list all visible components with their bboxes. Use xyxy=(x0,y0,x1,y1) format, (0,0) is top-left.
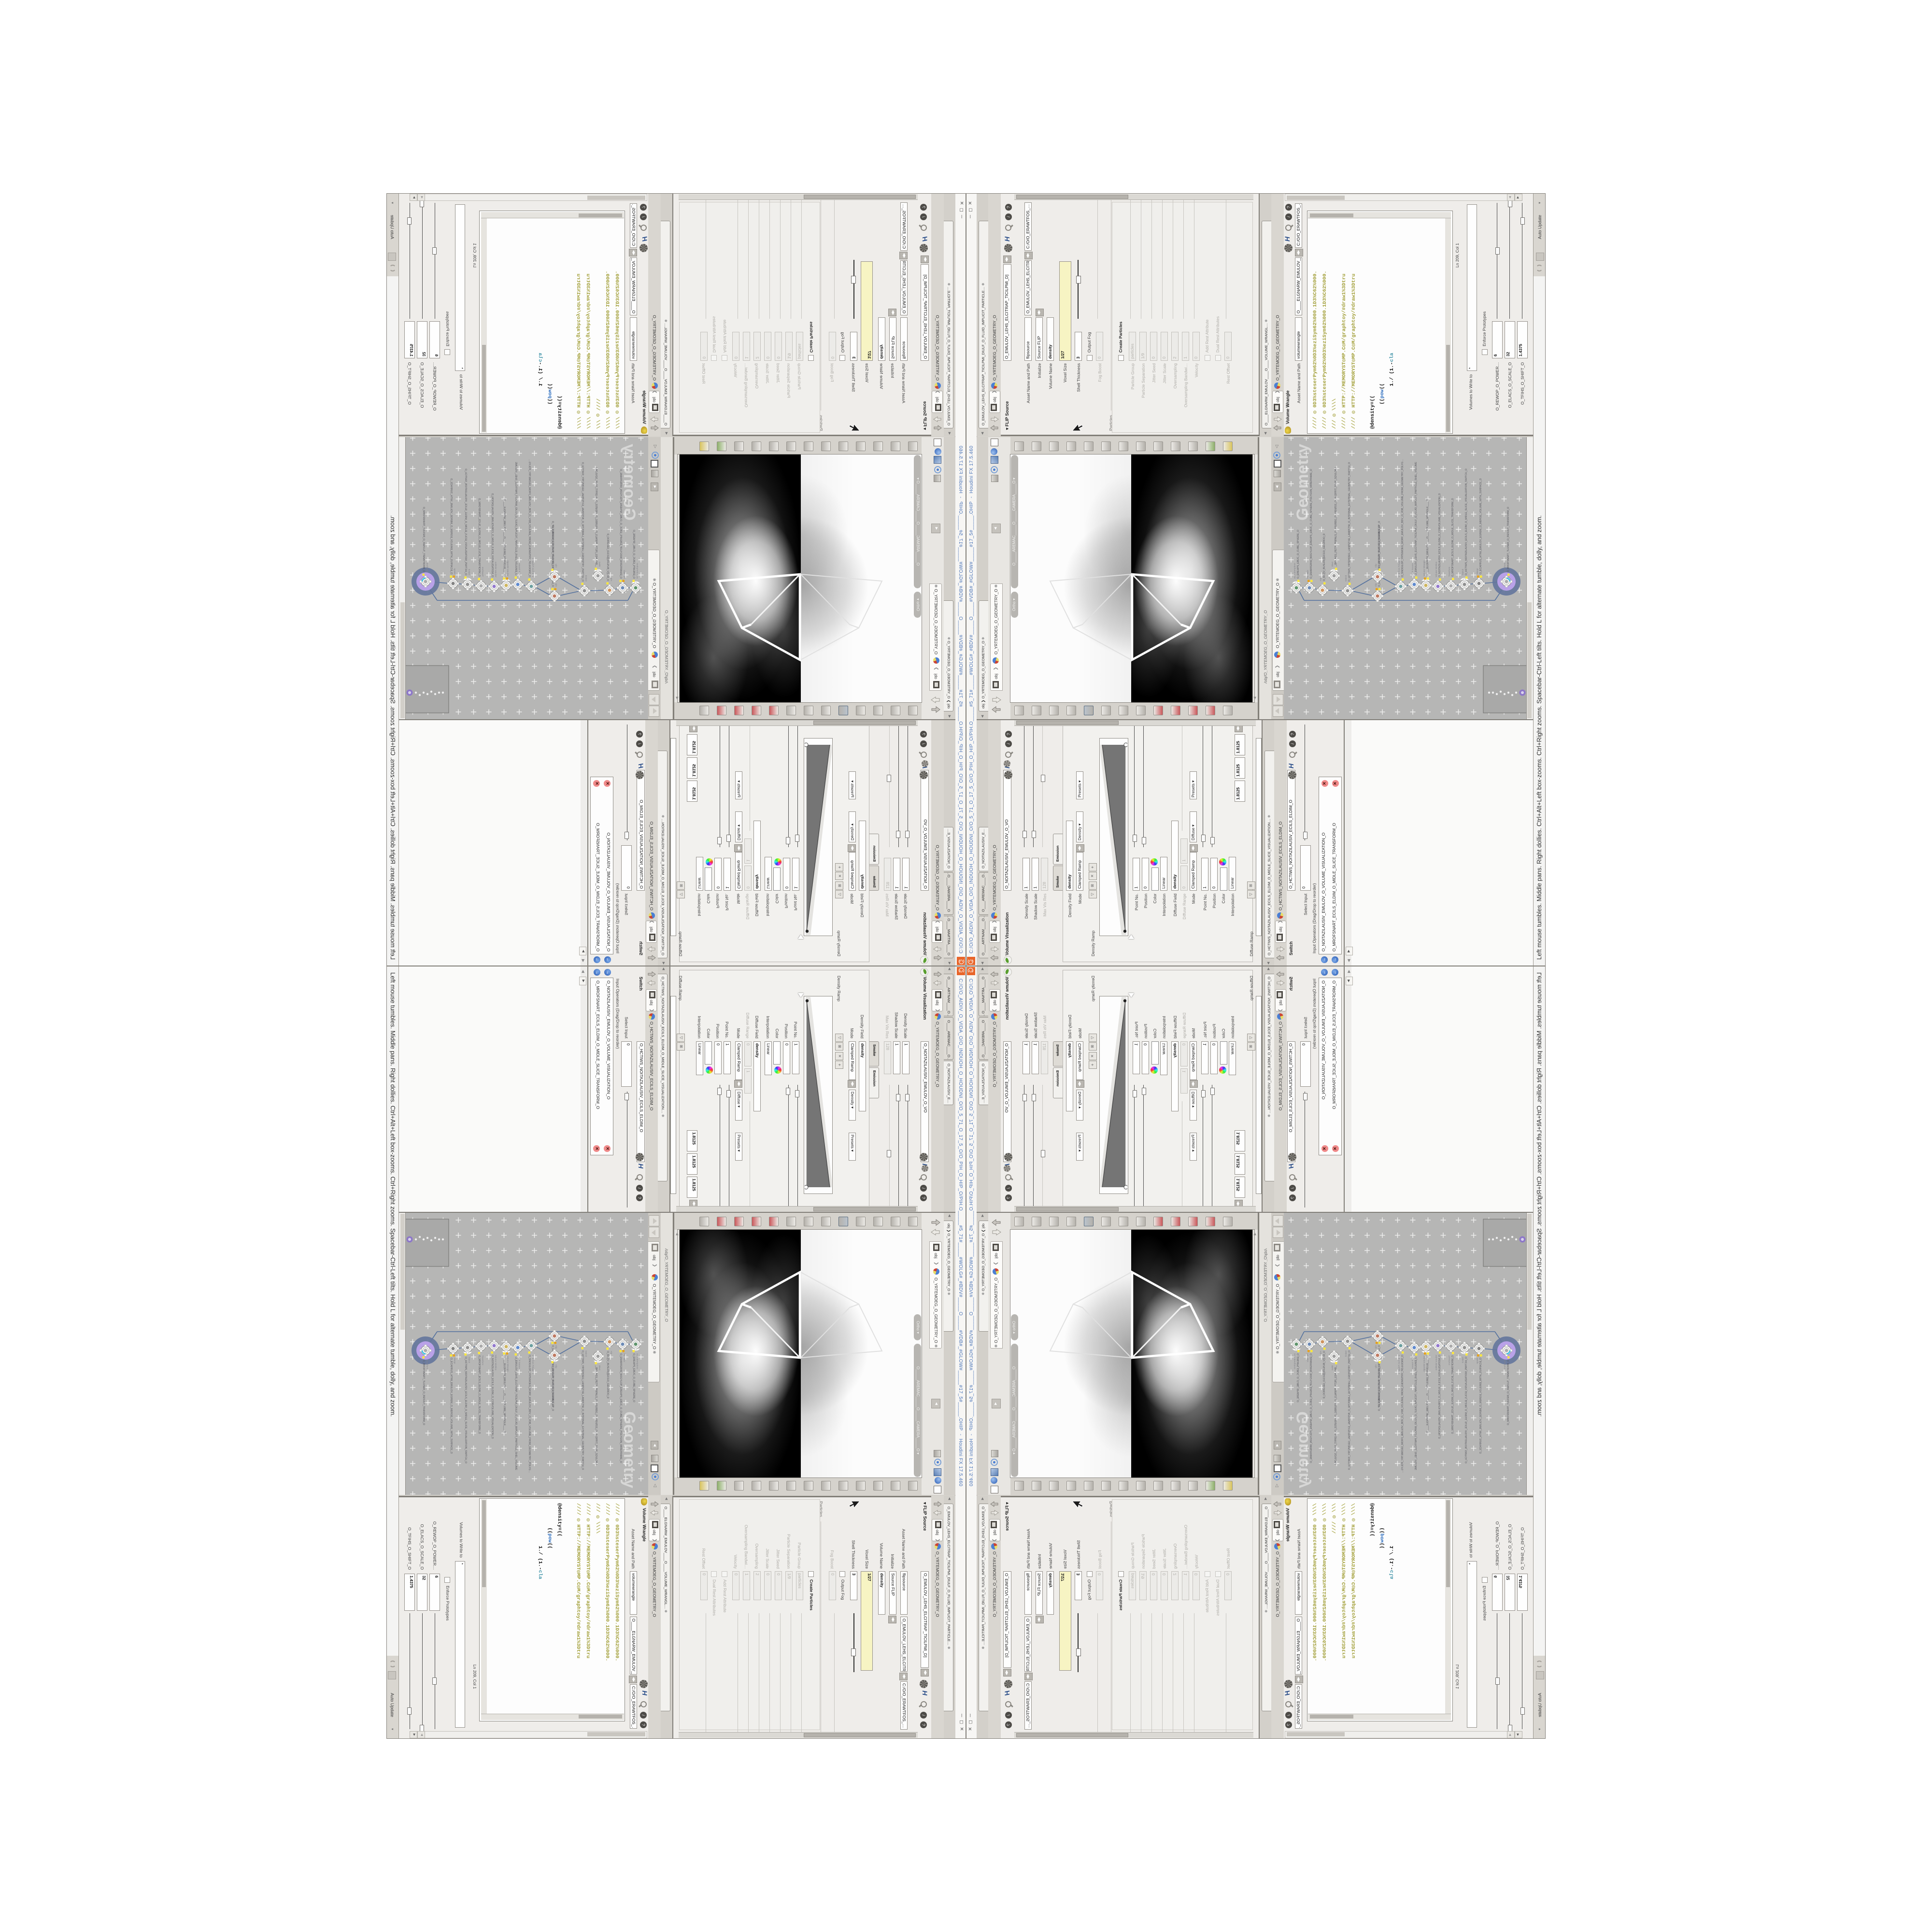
svg-text:VDB from Polygons: VDB from Polygons xyxy=(532,558,534,577)
svg-text:O_ECAFRUS_HTIW_EMULOV_EGREM_O_: O_ECAFRUS_HTIW_EMULOV_EGREM_O_MERGE_VOLU… xyxy=(1479,478,1482,574)
svg-text:Volume Wrangle: Volume Wrangle xyxy=(1423,1356,1425,1372)
svg-text:Blast: Blast xyxy=(598,1365,601,1371)
svg-text:Blast: Blast xyxy=(598,561,601,567)
svg-text:Switch: Switch xyxy=(1462,568,1464,575)
svg-text:O_MC╳V_BUSLRB╳ECGO_GENJRDO_D: O_MC╳V_BUSLRB╳ECGO_GENJRDO_D xyxy=(1322,533,1326,581)
svg-text:O_MROFSNART_TLUSER_O_RESULT_TR: O_MROFSNART_TLUSER_O_RESULT_TRANSFORM_O xyxy=(422,1360,425,1425)
svg-text:Volume Wrangle: Volume Wrangle xyxy=(507,1356,509,1372)
svg-text:O_EMARFERIW_NOGYLOP_EREHPS_EBU: O_EMARFERIW_NOGYLOP_EREHPS_EBUC_O_CUBE_S… xyxy=(1310,1353,1313,1463)
svg-text:Switch: Switch xyxy=(1345,1350,1347,1357)
svg-text:Blast: Blast xyxy=(1331,561,1334,567)
svg-text:Blast: Blast xyxy=(1331,1365,1334,1371)
svg-text:Transform: Transform xyxy=(482,1355,484,1365)
svg-text:File: File xyxy=(1320,1351,1322,1355)
svg-text:Transform: Transform xyxy=(426,562,428,572)
svg-text:Clip: Clip xyxy=(555,1345,557,1349)
svg-text:Geometry: Geometry xyxy=(620,444,639,521)
svg-text:O_EREHPS_EBUC_O_CUBE_SPHERE_O: O_EREHPS_EBUC_O_CUBE_SPHERE_O xyxy=(632,530,635,579)
svg-text:O_MROFSNART_ECILS_ELDIM_O_MIDL: O_MROFSNART_ECILS_ELDIM_O_MIDLE_SLICE_TR… xyxy=(1451,1355,1454,1434)
svg-text:PolyWire: PolyWire xyxy=(623,1353,625,1362)
svg-text:O_MROFSNART_ECILS_ELDIM_O_MIDL: O_MROFSNART_ECILS_ELDIM_O_MIDLE_SLICE_TR… xyxy=(478,498,481,577)
svg-text:an_CubeSphere: an_CubeSphere xyxy=(636,563,639,579)
svg-text:O____ELGNARW_EMULOV____O____VO: O____ELGNARW_EMULOV____O____VOLUME_WRANG… xyxy=(1426,499,1429,576)
svg-text:O____ELGNARW_EMULOV____O____VO: O____ELGNARW_EMULOV____O____VOLUME_WRANG… xyxy=(503,1356,506,1433)
svg-text:Geometry: Geometry xyxy=(620,1411,639,1488)
svg-text:VDB from Polygons: VDB from Polygons xyxy=(532,1355,534,1374)
svg-text:O____ELGNARW_EMULOV____O____VO: O____ELGNARW_EMULOV____O____VOLUME_WRANG… xyxy=(1426,1356,1429,1433)
svg-text:Transform: Transform xyxy=(426,1360,428,1370)
svg-text:O_MROFSNART_ECILS_ELDIM_O_MIDL: O_MROFSNART_ECILS_ELDIM_O_MIDLE_SLICE_TR… xyxy=(478,1355,481,1434)
svg-text:O_EMULOV_PILC_O_VOLUME_CLIP_O: O_EMULOV_PILC_O_VOLUME_CLIP_O xyxy=(1378,521,1381,568)
svg-text:VDB from Polygons: VDB from Polygons xyxy=(1398,558,1400,577)
svg-text:File: File xyxy=(610,1351,612,1355)
svg-text:O_EMULOV_PILC_O_VOLUME_CLIP_O: O_EMULOV_PILC_O_VOLUME_CLIP_O xyxy=(551,1364,554,1411)
svg-text:O_MC╳V_BUSLRB╳ECGO_GENJRDO_D: O_MC╳V_BUSLRB╳ECGO_GENJRDO_D xyxy=(1322,1351,1326,1399)
svg-text:an_CubeSphere: an_CubeSphere xyxy=(636,1353,639,1369)
svg-text:O_EMARFERIW_NOGYLOP_EREHPS_EBU: O_EMARFERIW_NOGYLOP_EREHPS_EBUC_O_CUBE_S… xyxy=(619,1353,622,1463)
svg-text:O_EMULOV_LEHS_ELCITRAP_TICILPM: O_EMULOV_LEHS_ELCITRAP_TICILPMI_DIULF_O_… xyxy=(1415,462,1418,575)
svg-text:Merge: Merge xyxy=(454,1358,456,1364)
svg-text:Transform: Transform xyxy=(482,567,484,577)
svg-text:Volume VisSlice: Volume VisSlice xyxy=(1435,561,1437,577)
svg-text:Clip: Clip xyxy=(1375,1364,1377,1368)
svg-text:O_EREHPS_EBUC_O_CUBE_SPHERE_O: O_EREHPS_EBUC_O_CUBE_SPHERE_O xyxy=(1297,530,1300,579)
svg-text:O_EMULOV_PILC_O_VOLUME_CLIP_O: O_EMULOV_PILC_O_VOLUME_CLIP_O xyxy=(1378,1364,1381,1411)
svg-text:O_HCTIWS_NOITAZILAUSIV_ECILS_E: O_HCTIWS_NOITAZILAUSIV_ECILS_ELDIM_O_MID… xyxy=(1465,1357,1468,1463)
svg-text:PolyWire: PolyWire xyxy=(1307,570,1309,579)
svg-text:_JBO_NO1_PETS_TRIPALS_O_SSURBG: _JBO_NO1_PETS_TRIPALS_O_SSURBG_O_GENЛSS_… xyxy=(595,467,597,567)
svg-text:Geometry: Geometry xyxy=(1293,1411,1312,1488)
svg-text:File: File xyxy=(610,577,612,581)
svg-text:O_NOITAZILAUSIV_ECILS_ELDIM_O_: O_NOITAZILAUSIV_ECILS_ELDIM_O_CONVOLUME_… xyxy=(1438,493,1441,577)
svg-text:Volume Wrangle: Volume Wrangle xyxy=(507,560,509,576)
svg-text:O_NOITAZILAUSIV_ECILS_ELDIM_O_: O_NOITAZILAUSIV_ECILS_ELDIM_O_CONVOLUME_… xyxy=(1438,1355,1441,1439)
svg-text:PolyWire: PolyWire xyxy=(623,570,625,579)
svg-text:O_HCTIWS_NOITAZILAUSIV_ECILS_E: O_HCTIWS_NOITAZILAUSIV_ECILS_ELDIM_O_MID… xyxy=(464,469,467,575)
svg-text:Geometry: Geometry xyxy=(1293,444,1312,521)
svg-text:Switch: Switch xyxy=(468,1357,470,1364)
svg-text:FLIP Source: FLIP Source xyxy=(518,563,521,575)
svg-text:Transform: Transform xyxy=(1504,562,1506,572)
svg-text:O_EMARFERIW_NOGYLOP_EREHPS_EBU: O_EMARFERIW_NOGYLOP_EREHPS_EBUC_O_CUBE_S… xyxy=(619,469,622,579)
svg-text:O_SNOGILOP_YRTEMOEG_MORF_EMULO: O_SNOGILOP_YRTEMOEG_MORF_EMULOV_BDV_O_VD… xyxy=(528,1355,531,1473)
svg-text:O_MROFSNART_TLUSER_O_RESULT_TR: O_MROFSNART_TLUSER_O_RESULT_TRANSFORM_O xyxy=(422,507,425,572)
svg-text:FLIP Source: FLIP Source xyxy=(518,1357,521,1369)
svg-text:Switch: Switch xyxy=(1345,575,1347,582)
svg-text:O_SNOGILOP_YRTEMOEG_MORF_EMULO: O_SNOGILOP_YRTEMOEG_MORF_EMULOV_BDV_O_VD… xyxy=(1401,1355,1404,1473)
svg-text:Clip: Clip xyxy=(1375,1345,1377,1349)
svg-text:O_SNOGILOP_YRTEMOEG_MORF_EMULO: O_SNOGILOP_YRTEMOEG_MORF_EMULOV_BDV_O_VD… xyxy=(528,459,531,577)
svg-text:Merge: Merge xyxy=(1476,1358,1478,1364)
svg-text:Transform: Transform xyxy=(1504,1360,1506,1370)
svg-text:O_MROFSNART_TLUSER_O_RESULT_TR: O_MROFSNART_TLUSER_O_RESULT_TRANSFORM_O xyxy=(1507,1360,1510,1425)
svg-text:O_ECAFRUS_HTIW_EMULOV_EGREM_O_: O_ECAFRUS_HTIW_EMULOV_EGREM_O_MERGE_VOLU… xyxy=(450,478,453,574)
svg-text:O_EMULOV_LEHS_ELCITRAP_TICILPM: O_EMULOV_LEHS_ELCITRAP_TICILPMI_DIULF_O_… xyxy=(514,462,517,575)
svg-text:Volume VisSlice: Volume VisSlice xyxy=(1435,1355,1437,1371)
svg-text:O_MROFSNART_TLUSER_O_RESULT_TR: O_MROFSNART_TLUSER_O_RESULT_TRANSFORM_O xyxy=(1507,507,1510,572)
svg-text:Switch: Switch xyxy=(468,568,470,575)
svg-text:O_EREHPS_EBUC_O_CUBE_SPHERE_O: O_EREHPS_EBUC_O_CUBE_SPHERE_O xyxy=(632,1353,635,1402)
svg-text:O_HCTIWS_YRTEMOEG_LANRETXE_LAN: O_HCTIWS_YRTEMOEG_LANRETXE_LANRETNI_O_IN… xyxy=(581,462,584,582)
svg-text:PolyWire: PolyWire xyxy=(1307,1353,1309,1362)
svg-text:an_CubeSphere: an_CubeSphere xyxy=(1293,563,1296,579)
svg-text:Volume VisSlice: Volume VisSlice xyxy=(495,1355,497,1371)
svg-text:O_MROFSNART_ECILS_ELDIM_O_MIDL: O_MROFSNART_ECILS_ELDIM_O_MIDLE_SLICE_TR… xyxy=(1451,498,1454,577)
svg-text:Switch: Switch xyxy=(585,575,587,582)
svg-text:Volume VisSlice: Volume VisSlice xyxy=(495,561,497,577)
svg-text:O_NOITAZILAUSIV_ECILS_ELDIM_O_: O_NOITAZILAUSIV_ECILS_ELDIM_O_CONVOLUME_… xyxy=(491,1355,494,1439)
svg-text:O_ECAFRUS_HTIW_EMULOV_EGREM_O_: O_ECAFRUS_HTIW_EMULOV_EGREM_O_MERGE_VOLU… xyxy=(450,1358,453,1454)
svg-text:an_CubeSphere: an_CubeSphere xyxy=(1293,1353,1296,1369)
svg-text:Clip: Clip xyxy=(555,564,557,568)
svg-text:O_MC╳V_BUSLRB╳ECGO_GENJRDO_D: O_MC╳V_BUSLRB╳ECGO_GENJRDO_D xyxy=(606,1351,610,1399)
svg-text:O_EMULOV_PILC_O_VOLUME_CLIP_O: O_EMULOV_PILC_O_VOLUME_CLIP_O xyxy=(551,521,554,568)
svg-text:Transform: Transform xyxy=(1448,567,1450,577)
svg-text:O_SNOGILOP_YRTEMOEG_MORF_EMULO: O_SNOGILOP_YRTEMOEG_MORF_EMULOV_BDV_O_VD… xyxy=(1401,459,1404,577)
svg-text:FLIP Source: FLIP Source xyxy=(1411,563,1414,575)
svg-text:_JBO_NO1_PETS_TRIPALS_O_SSURBG: _JBO_NO1_PETS_TRIPALS_O_SSURBG_O_GENЛSS_… xyxy=(1335,467,1337,567)
svg-text:Clip: Clip xyxy=(555,583,557,587)
svg-text:O_HCTIWS_YRTEMOEG_LANRETXE_LAN: O_HCTIWS_YRTEMOEG_LANRETXE_LANRETNI_O_IN… xyxy=(1348,462,1351,582)
svg-text:_JBO_NO1_PETS_TRIPALS_O_SSURBG: _JBO_NO1_PETS_TRIPALS_O_SSURBG_O_GENЛSS_… xyxy=(595,1365,597,1465)
svg-text:O_EMULOV_LEHS_ELCITRAP_TICILPM: O_EMULOV_LEHS_ELCITRAP_TICILPMI_DIULF_O_… xyxy=(514,1357,517,1470)
svg-text:O_HCTIWS_NOITAZILAUSIV_ECILS_E: O_HCTIWS_NOITAZILAUSIV_ECILS_ELDIM_O_MID… xyxy=(1465,469,1468,575)
svg-text:Volume Wrangle: Volume Wrangle xyxy=(1423,560,1425,576)
svg-text:File: File xyxy=(1320,577,1322,581)
svg-text:Merge: Merge xyxy=(454,568,456,574)
svg-text:O_HCTIWS_YRTEMOEG_LANRETXE_LAN: O_HCTIWS_YRTEMOEG_LANRETXE_LANRETNI_O_IN… xyxy=(581,1350,584,1470)
svg-text:FLIP Source: FLIP Source xyxy=(1411,1357,1414,1369)
svg-text:Transform: Transform xyxy=(1448,1355,1450,1365)
svg-text:_JBO_NO1_PETS_TRIPALS_O_SSURBG: _JBO_NO1_PETS_TRIPALS_O_SSURBG_O_GENЛSS_… xyxy=(1335,1365,1337,1465)
svg-text:Switch: Switch xyxy=(1462,1357,1464,1364)
svg-text:O_EMULOV_LEHS_ELCITRAP_TICILPM: O_EMULOV_LEHS_ELCITRAP_TICILPMI_DIULF_O_… xyxy=(1415,1357,1418,1470)
svg-text:O_HCTIWS_NOITAZILAUSIV_ECILS_E: O_HCTIWS_NOITAZILAUSIV_ECILS_ELDIM_O_MID… xyxy=(464,1357,467,1463)
svg-text:Merge: Merge xyxy=(1476,568,1478,574)
svg-text:Clip: Clip xyxy=(1375,564,1377,568)
svg-text:O_EREHPS_EBUC_O_CUBE_SPHERE_O: O_EREHPS_EBUC_O_CUBE_SPHERE_O xyxy=(1297,1353,1300,1402)
svg-text:O_ECAFRUS_HTIW_EMULOV_EGREM_O_: O_ECAFRUS_HTIW_EMULOV_EGREM_O_MERGE_VOLU… xyxy=(1479,1358,1482,1454)
svg-text:O____ELGNARW_EMULOV____O____VO: O____ELGNARW_EMULOV____O____VOLUME_WRANG… xyxy=(503,499,506,576)
svg-text:O_MC╳V_BUSLRB╳ECGO_GENJRDO_D: O_MC╳V_BUSLRB╳ECGO_GENJRDO_D xyxy=(606,533,610,581)
svg-text:Switch: Switch xyxy=(585,1350,587,1357)
svg-text:O_HCTIWS_YRTEMOEG_LANRETXE_LAN: O_HCTIWS_YRTEMOEG_LANRETXE_LANRETNI_O_IN… xyxy=(1348,1350,1351,1470)
svg-text:Clip: Clip xyxy=(1375,583,1377,587)
svg-text:Clip: Clip xyxy=(555,1364,557,1368)
svg-text:O_NOITAZILAUSIV_ECILS_ELDIM_O_: O_NOITAZILAUSIV_ECILS_ELDIM_O_CONVOLUME_… xyxy=(491,493,494,577)
svg-text:O_EMARFERIW_NOGYLOP_EREHPS_EBU: O_EMARFERIW_NOGYLOP_EREHPS_EBUC_O_CUBE_S… xyxy=(1310,469,1313,579)
svg-text:VDB from Polygons: VDB from Polygons xyxy=(1398,1355,1400,1374)
